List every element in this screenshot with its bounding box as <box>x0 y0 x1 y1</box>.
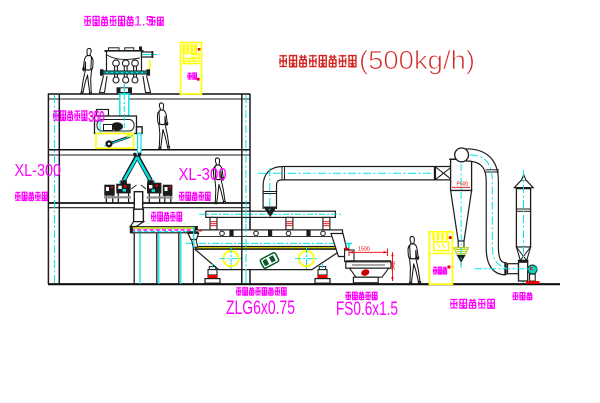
svg-text:1500: 1500 <box>358 246 370 252</box>
svg-text:ZLG6x0.75: ZLG6x0.75 <box>226 298 295 319</box>
svg-text:P500: P500 <box>457 182 469 188</box>
svg-text:548: 548 <box>391 261 397 270</box>
svg-text:FS0.6x1.5: FS0.6x1.5 <box>336 299 398 320</box>
svg-text:(500kg/h): (500kg/h) <box>359 45 475 75</box>
svg-text:XL-300: XL-300 <box>15 160 62 180</box>
svg-text:XL-300: XL-300 <box>179 164 227 184</box>
svg-text:350: 350 <box>89 110 105 126</box>
